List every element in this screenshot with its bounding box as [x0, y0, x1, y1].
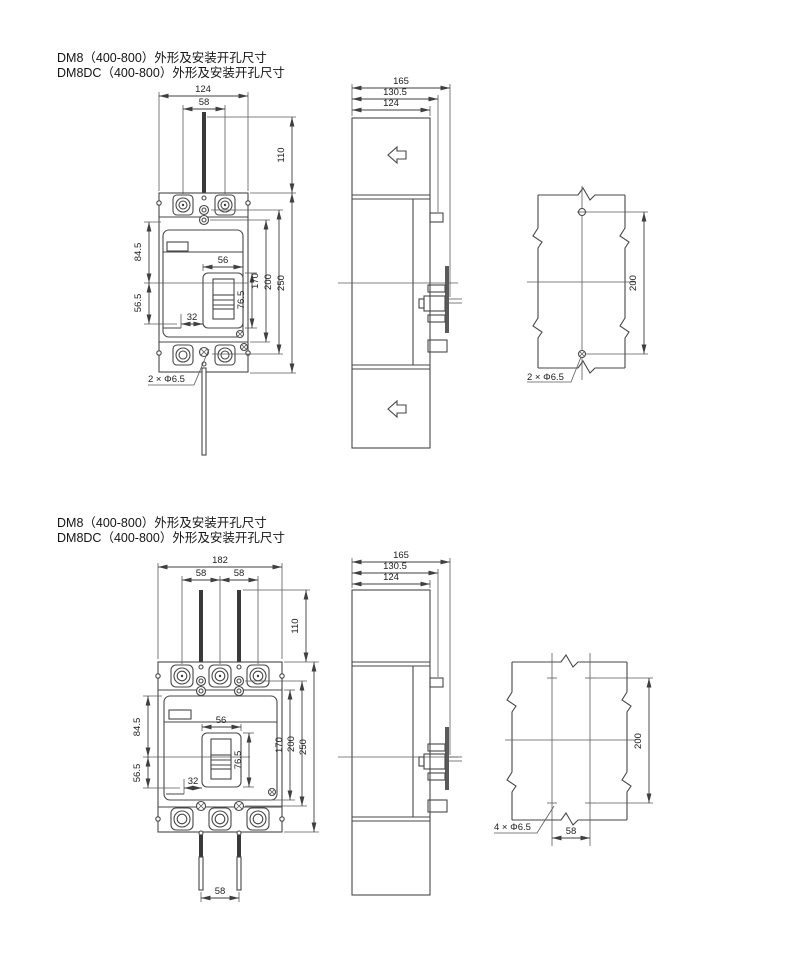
terminal-bottom-2 [209, 808, 231, 830]
dim-height-250: 250 [298, 739, 309, 755]
dim-upper-height: 84.5 [132, 718, 143, 737]
cover-screw [269, 789, 276, 796]
terminal-top-2 [209, 665, 231, 687]
dim-height-200: 200 [286, 736, 297, 752]
dim-terminal-pitch-2: 58 [234, 568, 245, 579]
section-2: DM8（400-800）外形及安装开孔尺寸 DM8DC（400-800）外形及安… [57, 515, 653, 902]
section-title-line1: DM8（400-800）外形及安装开孔尺寸 [57, 50, 267, 65]
dim-handle-width: 56 [218, 255, 229, 266]
terminal-top-3 [247, 665, 269, 687]
terminal-bottom-3 [247, 808, 269, 830]
dim-width-total: 124 [195, 84, 211, 95]
dim-hole-spacing-h: 58 [566, 826, 577, 837]
front-view-3pole: 182 58 58 110 84.5 56.5 32 [132, 555, 319, 902]
drill-pattern-2: 200 58 4 × Φ6.5 [494, 653, 653, 846]
bottom-busbars [199, 835, 241, 890]
dim-bar-height: 110 [276, 147, 287, 162]
dim-handle-height: 76.5 [236, 291, 247, 310]
dim-lower-height: 56.5 [133, 294, 144, 313]
terminal-bottom-right [215, 345, 235, 365]
dim-height-200: 200 [263, 274, 274, 290]
terminal-bottom-left [173, 345, 193, 365]
dim-depth-mid: 130.5 [383, 87, 407, 98]
dim-bottom-bar-pitch: 58 [215, 886, 226, 897]
terminal-bottom-1 [171, 808, 193, 830]
section-title-line1: DM8（400-800）外形及安装开孔尺寸 [57, 515, 267, 530]
dim-bar-height: 110 [290, 618, 301, 633]
cover-screw [237, 331, 244, 338]
terminal-top-right [215, 195, 235, 215]
dim-handle-offset: 32 [188, 776, 199, 787]
side-view-2: 165 130.5 124 [338, 550, 462, 895]
top-busbar [199, 590, 203, 666]
mounting-hole-label: 2 × Φ6.5 [148, 374, 185, 385]
drill-hole-top [577, 209, 587, 216]
cover-screw [241, 344, 248, 351]
dim-lower-height: 56.5 [132, 764, 143, 783]
mounting-hole-bottom [200, 348, 209, 357]
side-body [352, 590, 430, 895]
dim-depth-total: 165 [393, 550, 409, 561]
drill-pattern-1: 200 2 × Φ6.5 [527, 186, 648, 383]
bottom-busbar [202, 368, 206, 455]
drill-hole-label: 4 × Φ6.5 [494, 822, 531, 833]
section-title-line2: DM8DC（400-800）外形及安装开孔尺寸 [57, 65, 285, 80]
drill-hole-marks [547, 678, 595, 803]
dim-depth-body: 124 [383, 572, 399, 583]
catalog-page: DM8（400-800）外形及安装开孔尺寸 DM8DC（400-800）外形及安… [0, 0, 790, 957]
dim-height-250: 250 [276, 275, 287, 291]
front-view-2pole: 124 58 110 84.5 56.5 32 56 [133, 84, 296, 455]
dim-handle-width: 56 [216, 715, 227, 726]
technical-drawing: DM8（400-800）外形及安装开孔尺寸 DM8DC（400-800）外形及安… [0, 0, 790, 957]
dim-depth-total: 165 [393, 76, 409, 87]
section-1: DM8（400-800）外形及安装开孔尺寸 DM8DC（400-800）外形及安… [57, 50, 648, 455]
top-busbar [237, 590, 241, 666]
section-title-line2: DM8DC（400-800）外形及安装开孔尺寸 [57, 530, 285, 545]
dim-depth-body: 124 [383, 98, 399, 109]
dim-depth-mid: 130.5 [383, 561, 407, 572]
terminal-top-1 [171, 665, 193, 687]
top-busbar [202, 112, 206, 195]
dim-terminal-pitch-1: 58 [196, 568, 207, 579]
dim-height-170: 170 [250, 273, 261, 289]
drill-hole-bottom [579, 351, 586, 358]
dim-hole-spacing-v: 200 [628, 275, 639, 291]
side-view-1: 165 130.5 124 [338, 76, 462, 448]
dim-hole-spacing-v: 200 [633, 733, 644, 749]
terminal-top-left [173, 195, 193, 215]
dim-height-170: 170 [274, 737, 285, 753]
dim-width-total: 182 [212, 555, 228, 566]
bar-end-screw [202, 196, 206, 200]
drill-hole-label: 2 × Φ6.5 [527, 372, 564, 383]
dim-upper-height: 84.5 [133, 243, 144, 262]
dim-terminal-pitch: 58 [199, 97, 210, 108]
dim-handle-offset: 32 [187, 312, 198, 323]
dim-handle-height: 76.5 [233, 751, 244, 770]
